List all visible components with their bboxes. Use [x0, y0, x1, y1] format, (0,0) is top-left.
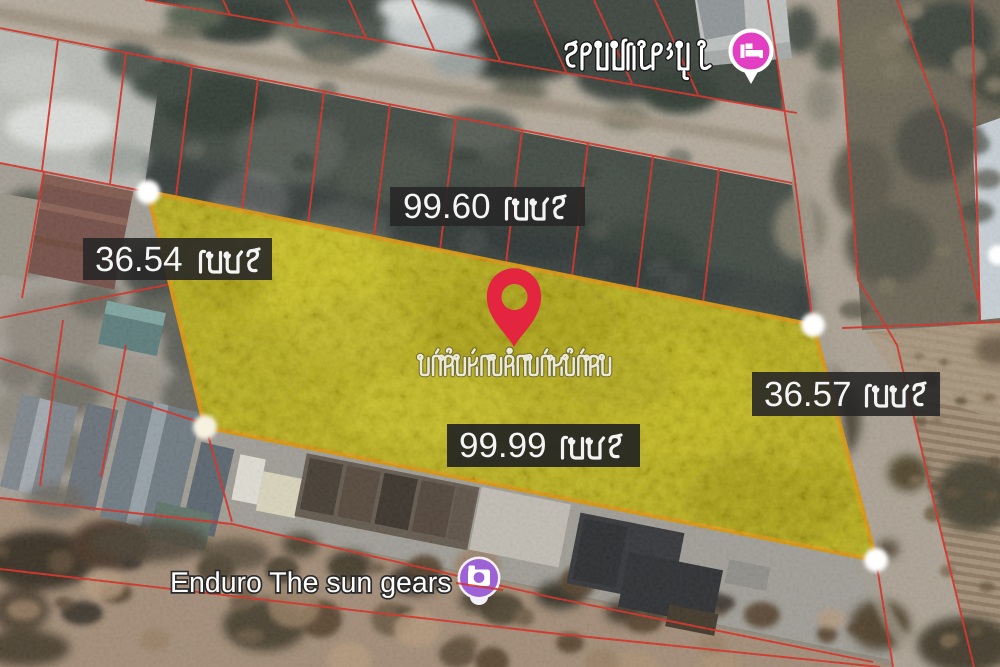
svg-text:99.60: 99.60: [403, 187, 491, 226]
svg-text:36.57: 36.57: [764, 375, 852, 414]
svg-text:Enduro The sun gears: Enduro The sun gears: [170, 567, 452, 599]
svg-text:36.54: 36.54: [95, 240, 183, 279]
svg-text:99.99: 99.99: [459, 426, 547, 465]
